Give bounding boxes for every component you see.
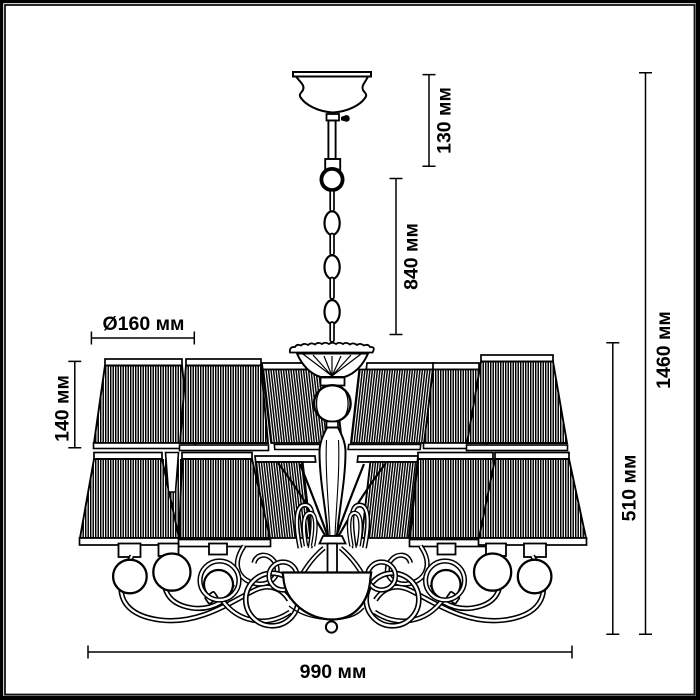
svg-text:840 мм: 840 мм [401,223,423,290]
svg-text:Ø160 мм: Ø160 мм [103,313,185,335]
svg-text:140 мм: 140 мм [51,375,73,442]
svg-text:1460 мм: 1460 мм [653,311,675,389]
svg-text:990 мм: 990 мм [300,661,367,683]
svg-text:510 мм: 510 мм [619,455,641,522]
svg-text:130 мм: 130 мм [434,87,456,154]
